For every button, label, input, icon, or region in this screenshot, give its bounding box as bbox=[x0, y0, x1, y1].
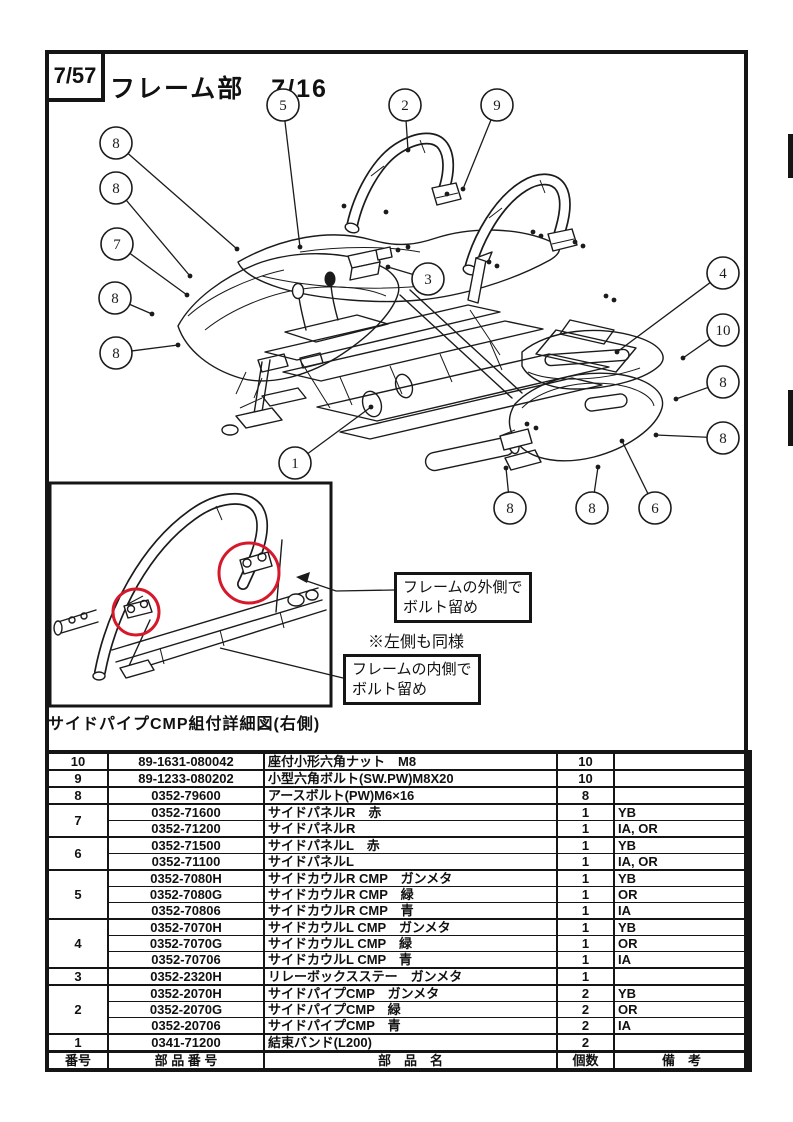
svg-text:3: 3 bbox=[424, 272, 432, 288]
balloon-8: 8 bbox=[99, 282, 154, 316]
cell-quantity: 10 bbox=[557, 770, 614, 787]
cell-item-no: 4 bbox=[47, 919, 108, 968]
cell-quantity: 1 bbox=[557, 837, 614, 854]
cell-part-name: サイドパネルR bbox=[264, 821, 557, 838]
table-row: 0352-7070GサイドカウルL CMP 緑1OR bbox=[47, 936, 750, 952]
svg-text:1: 1 bbox=[291, 456, 299, 472]
cell-part-name: サイドカウルR CMP 青 bbox=[264, 903, 557, 920]
cell-part-number: 0352-71500 bbox=[108, 837, 264, 854]
svg-text:8: 8 bbox=[112, 346, 120, 362]
cell-quantity: 2 bbox=[557, 985, 614, 1002]
cell-quantity: 1 bbox=[557, 804, 614, 821]
table-row: 10341-71200結束バンド(L200)2 bbox=[47, 1034, 750, 1052]
cell-remarks bbox=[614, 968, 750, 985]
balloon-6: 6 bbox=[620, 439, 671, 524]
svg-text:4: 4 bbox=[719, 266, 727, 282]
cell-part-number: 0352-70706 bbox=[108, 952, 264, 969]
callout-outside-line1: フレームの外側で bbox=[403, 578, 523, 598]
cell-remarks: IA bbox=[614, 952, 750, 969]
cell-quantity: 1 bbox=[557, 887, 614, 903]
cell-part-name: サイドカウルL CMP ガンメタ bbox=[264, 919, 557, 936]
svg-text:8: 8 bbox=[112, 181, 120, 197]
table-row: 50352-7080HサイドカウルR CMP ガンメタ1YB bbox=[47, 870, 750, 887]
cell-quantity: 1 bbox=[557, 870, 614, 887]
svg-text:8: 8 bbox=[506, 501, 514, 517]
cell-part-number: 0352-7070G bbox=[108, 936, 264, 952]
header-cell: 備 考 bbox=[614, 1052, 750, 1071]
cell-quantity: 1 bbox=[557, 821, 614, 838]
table-row: 60352-71500サイドパネルL 赤1YB bbox=[47, 837, 750, 854]
table-row: 0352-71200サイドパネルR1IA, OR bbox=[47, 821, 750, 838]
cell-part-name: サイドパネルR 赤 bbox=[264, 804, 557, 821]
cell-part-name: サイドカウルL CMP 緑 bbox=[264, 936, 557, 952]
balloon-10: 10 bbox=[681, 314, 739, 360]
cell-part-number: 0352-2070G bbox=[108, 1002, 264, 1018]
cell-item-no: 5 bbox=[47, 870, 108, 919]
balloon-9: 9 bbox=[461, 89, 513, 191]
cell-quantity: 1 bbox=[557, 952, 614, 969]
bolt-dots bbox=[342, 192, 617, 431]
cell-part-number: 0352-71100 bbox=[108, 854, 264, 871]
svg-text:8: 8 bbox=[588, 501, 596, 517]
table-row: 989-1233-080202小型六角ボルト(SW.PW)M8X2010 bbox=[47, 770, 750, 787]
callout-outside: フレームの外側で ボルト留め bbox=[394, 572, 532, 623]
svg-text:9: 9 bbox=[493, 98, 501, 114]
cell-item-no: 10 bbox=[47, 752, 108, 770]
svg-text:8: 8 bbox=[112, 136, 120, 152]
table-row: 80352-79600アースボルト(PW)M6×168 bbox=[47, 787, 750, 804]
cell-part-name: 小型六角ボルト(SW.PW)M8X20 bbox=[264, 770, 557, 787]
balloon-8: 8 bbox=[100, 172, 192, 278]
cell-quantity: 1 bbox=[557, 919, 614, 936]
svg-text:6: 6 bbox=[651, 501, 659, 517]
cell-part-name: サイドカウルR CMP 緑 bbox=[264, 887, 557, 903]
relay-box-stay-drawing bbox=[348, 247, 392, 280]
cell-part-number: 0352-7080H bbox=[108, 870, 264, 887]
callout-inside: フレームの内側で ボルト留め bbox=[343, 654, 481, 705]
balloon-8: 8 bbox=[654, 422, 739, 454]
svg-text:8: 8 bbox=[719, 431, 727, 447]
cell-remarks: YB bbox=[614, 837, 750, 854]
cell-quantity: 2 bbox=[557, 1018, 614, 1035]
cell-part-name: 結束バンド(L200) bbox=[264, 1034, 557, 1052]
cell-part-number: 0352-7070H bbox=[108, 919, 264, 936]
table-row: 0352-70706サイドカウルL CMP 青1IA bbox=[47, 952, 750, 969]
cell-quantity: 1 bbox=[557, 968, 614, 985]
cell-remarks bbox=[614, 752, 750, 770]
cell-part-name: リレーボックスステー ガンメタ bbox=[264, 968, 557, 985]
cell-item-no: 1 bbox=[47, 1034, 108, 1052]
cell-part-number: 0352-20706 bbox=[108, 1018, 264, 1035]
cell-item-no: 3 bbox=[47, 968, 108, 985]
cell-remarks: YB bbox=[614, 919, 750, 936]
parts-table: 1089-1631-080042座付小形六角ナット M810989-1233-0… bbox=[45, 750, 752, 1072]
right-cowl-drawing bbox=[500, 330, 663, 460]
cell-quantity: 1 bbox=[557, 854, 614, 871]
balloon-8: 8 bbox=[576, 465, 608, 524]
cell-part-name: サイドパイプCMP ガンメタ bbox=[264, 985, 557, 1002]
cell-part-number: 0352-71200 bbox=[108, 821, 264, 838]
svg-text:8: 8 bbox=[719, 375, 727, 391]
callout-outside-line2: ボルト留め bbox=[403, 598, 523, 618]
callout-inside-line2: ボルト留め bbox=[352, 680, 472, 700]
svg-text:5: 5 bbox=[279, 98, 287, 114]
cell-remarks: IA, OR bbox=[614, 854, 750, 871]
cell-part-number: 0352-2320H bbox=[108, 968, 264, 985]
header-cell: 個数 bbox=[557, 1052, 614, 1071]
table-row: 0352-7080GサイドカウルR CMP 緑1OR bbox=[47, 887, 750, 903]
balloon-1: 1 bbox=[279, 405, 373, 479]
table-row: 0352-70806サイドカウルR CMP 青1IA bbox=[47, 903, 750, 920]
cell-quantity: 2 bbox=[557, 1034, 614, 1052]
cell-part-name: サイドパネルL 赤 bbox=[264, 837, 557, 854]
cell-remarks: YB bbox=[614, 804, 750, 821]
cell-part-number: 89-1233-080202 bbox=[108, 770, 264, 787]
table-row: 70352-71600サイドパネルR 赤1YB bbox=[47, 804, 750, 821]
cell-remarks: OR bbox=[614, 1002, 750, 1018]
table-row: 1089-1631-080042座付小形六角ナット M810 bbox=[47, 752, 750, 770]
header-cell: 番号 bbox=[47, 1052, 108, 1071]
cell-part-name: サイドパイプCMP 青 bbox=[264, 1018, 557, 1035]
cell-part-name: サイドパネルL bbox=[264, 854, 557, 871]
table-header-row: 番号部 品 番 号部 品 名個数備 考 bbox=[47, 1052, 750, 1071]
cell-item-no: 9 bbox=[47, 770, 108, 787]
note-left-side-same: ※左側も同様 bbox=[368, 628, 464, 652]
cell-remarks: OR bbox=[614, 936, 750, 952]
table-row: 0352-2070GサイドパイプCMP 緑2OR bbox=[47, 1002, 750, 1018]
cell-part-number: 0352-71600 bbox=[108, 804, 264, 821]
cell-part-number: 89-1631-080042 bbox=[108, 752, 264, 770]
cell-item-no: 8 bbox=[47, 787, 108, 804]
cell-item-no: 6 bbox=[47, 837, 108, 870]
svg-text:2: 2 bbox=[401, 98, 409, 114]
table-row: 20352-2070HサイドパイプCMP ガンメタ2YB bbox=[47, 985, 750, 1002]
cell-remarks bbox=[614, 787, 750, 804]
cell-quantity: 10 bbox=[557, 752, 614, 770]
cell-remarks bbox=[614, 770, 750, 787]
balloon-8: 8 bbox=[494, 466, 526, 524]
svg-text:10: 10 bbox=[716, 323, 731, 339]
cell-part-name: サイドパイプCMP 緑 bbox=[264, 1002, 557, 1018]
cell-part-number: 0352-7080G bbox=[108, 887, 264, 903]
scan-artifacts bbox=[788, 134, 793, 446]
cell-quantity: 1 bbox=[557, 936, 614, 952]
cell-part-name: サイドカウルR CMP ガンメタ bbox=[264, 870, 557, 887]
cell-part-number: 0352-79600 bbox=[108, 787, 264, 804]
table-row: 30352-2320Hリレーボックスステー ガンメタ1 bbox=[47, 968, 750, 985]
cell-remarks: IA bbox=[614, 903, 750, 920]
cell-quantity: 1 bbox=[557, 903, 614, 920]
balloon-layer: 887885293141088886 bbox=[99, 89, 739, 524]
cell-remarks bbox=[614, 1034, 750, 1052]
inset-caption: サイドパイプCMP組付詳細図(右側) bbox=[48, 710, 320, 734]
balloon-5: 5 bbox=[267, 89, 302, 249]
cell-quantity: 8 bbox=[557, 787, 614, 804]
table-row: 0352-71100サイドパネルL1IA, OR bbox=[47, 854, 750, 871]
cell-part-number: 0341-71200 bbox=[108, 1034, 264, 1052]
cell-part-name: サイドカウルL CMP 青 bbox=[264, 952, 557, 969]
parts-table-body: 1089-1631-080042座付小形六角ナット M810989-1233-0… bbox=[47, 752, 750, 1070]
cell-part-number: 0352-70806 bbox=[108, 903, 264, 920]
header-cell: 部 品 名 bbox=[264, 1052, 557, 1071]
header-cell: 部 品 番 号 bbox=[108, 1052, 264, 1071]
cell-remarks: YB bbox=[614, 870, 750, 887]
balloon-3: 3 bbox=[386, 263, 444, 295]
cell-part-number: 0352-2070H bbox=[108, 985, 264, 1002]
callout-inside-line1: フレームの内側で bbox=[352, 660, 472, 680]
cell-remarks: OR bbox=[614, 887, 750, 903]
balloon-8: 8 bbox=[100, 337, 180, 369]
cell-remarks: IA, OR bbox=[614, 821, 750, 838]
table-row: 40352-7070HサイドカウルL CMP ガンメタ1YB bbox=[47, 919, 750, 936]
svg-text:7: 7 bbox=[113, 237, 121, 253]
cell-part-name: 座付小形六角ナット M8 bbox=[264, 752, 557, 770]
table-row: 0352-20706サイドパイプCMP 青2IA bbox=[47, 1018, 750, 1035]
cell-quantity: 2 bbox=[557, 1002, 614, 1018]
cell-remarks: YB bbox=[614, 985, 750, 1002]
balloon-8: 8 bbox=[674, 366, 739, 401]
svg-text:8: 8 bbox=[111, 291, 119, 307]
cell-item-no: 7 bbox=[47, 804, 108, 837]
catalog-page: 7/57 フレーム部 7/16 bbox=[0, 0, 793, 1122]
cell-remarks: IA bbox=[614, 1018, 750, 1035]
cell-item-no: 2 bbox=[47, 985, 108, 1034]
cell-part-name: アースボルト(PW)M6×16 bbox=[264, 787, 557, 804]
